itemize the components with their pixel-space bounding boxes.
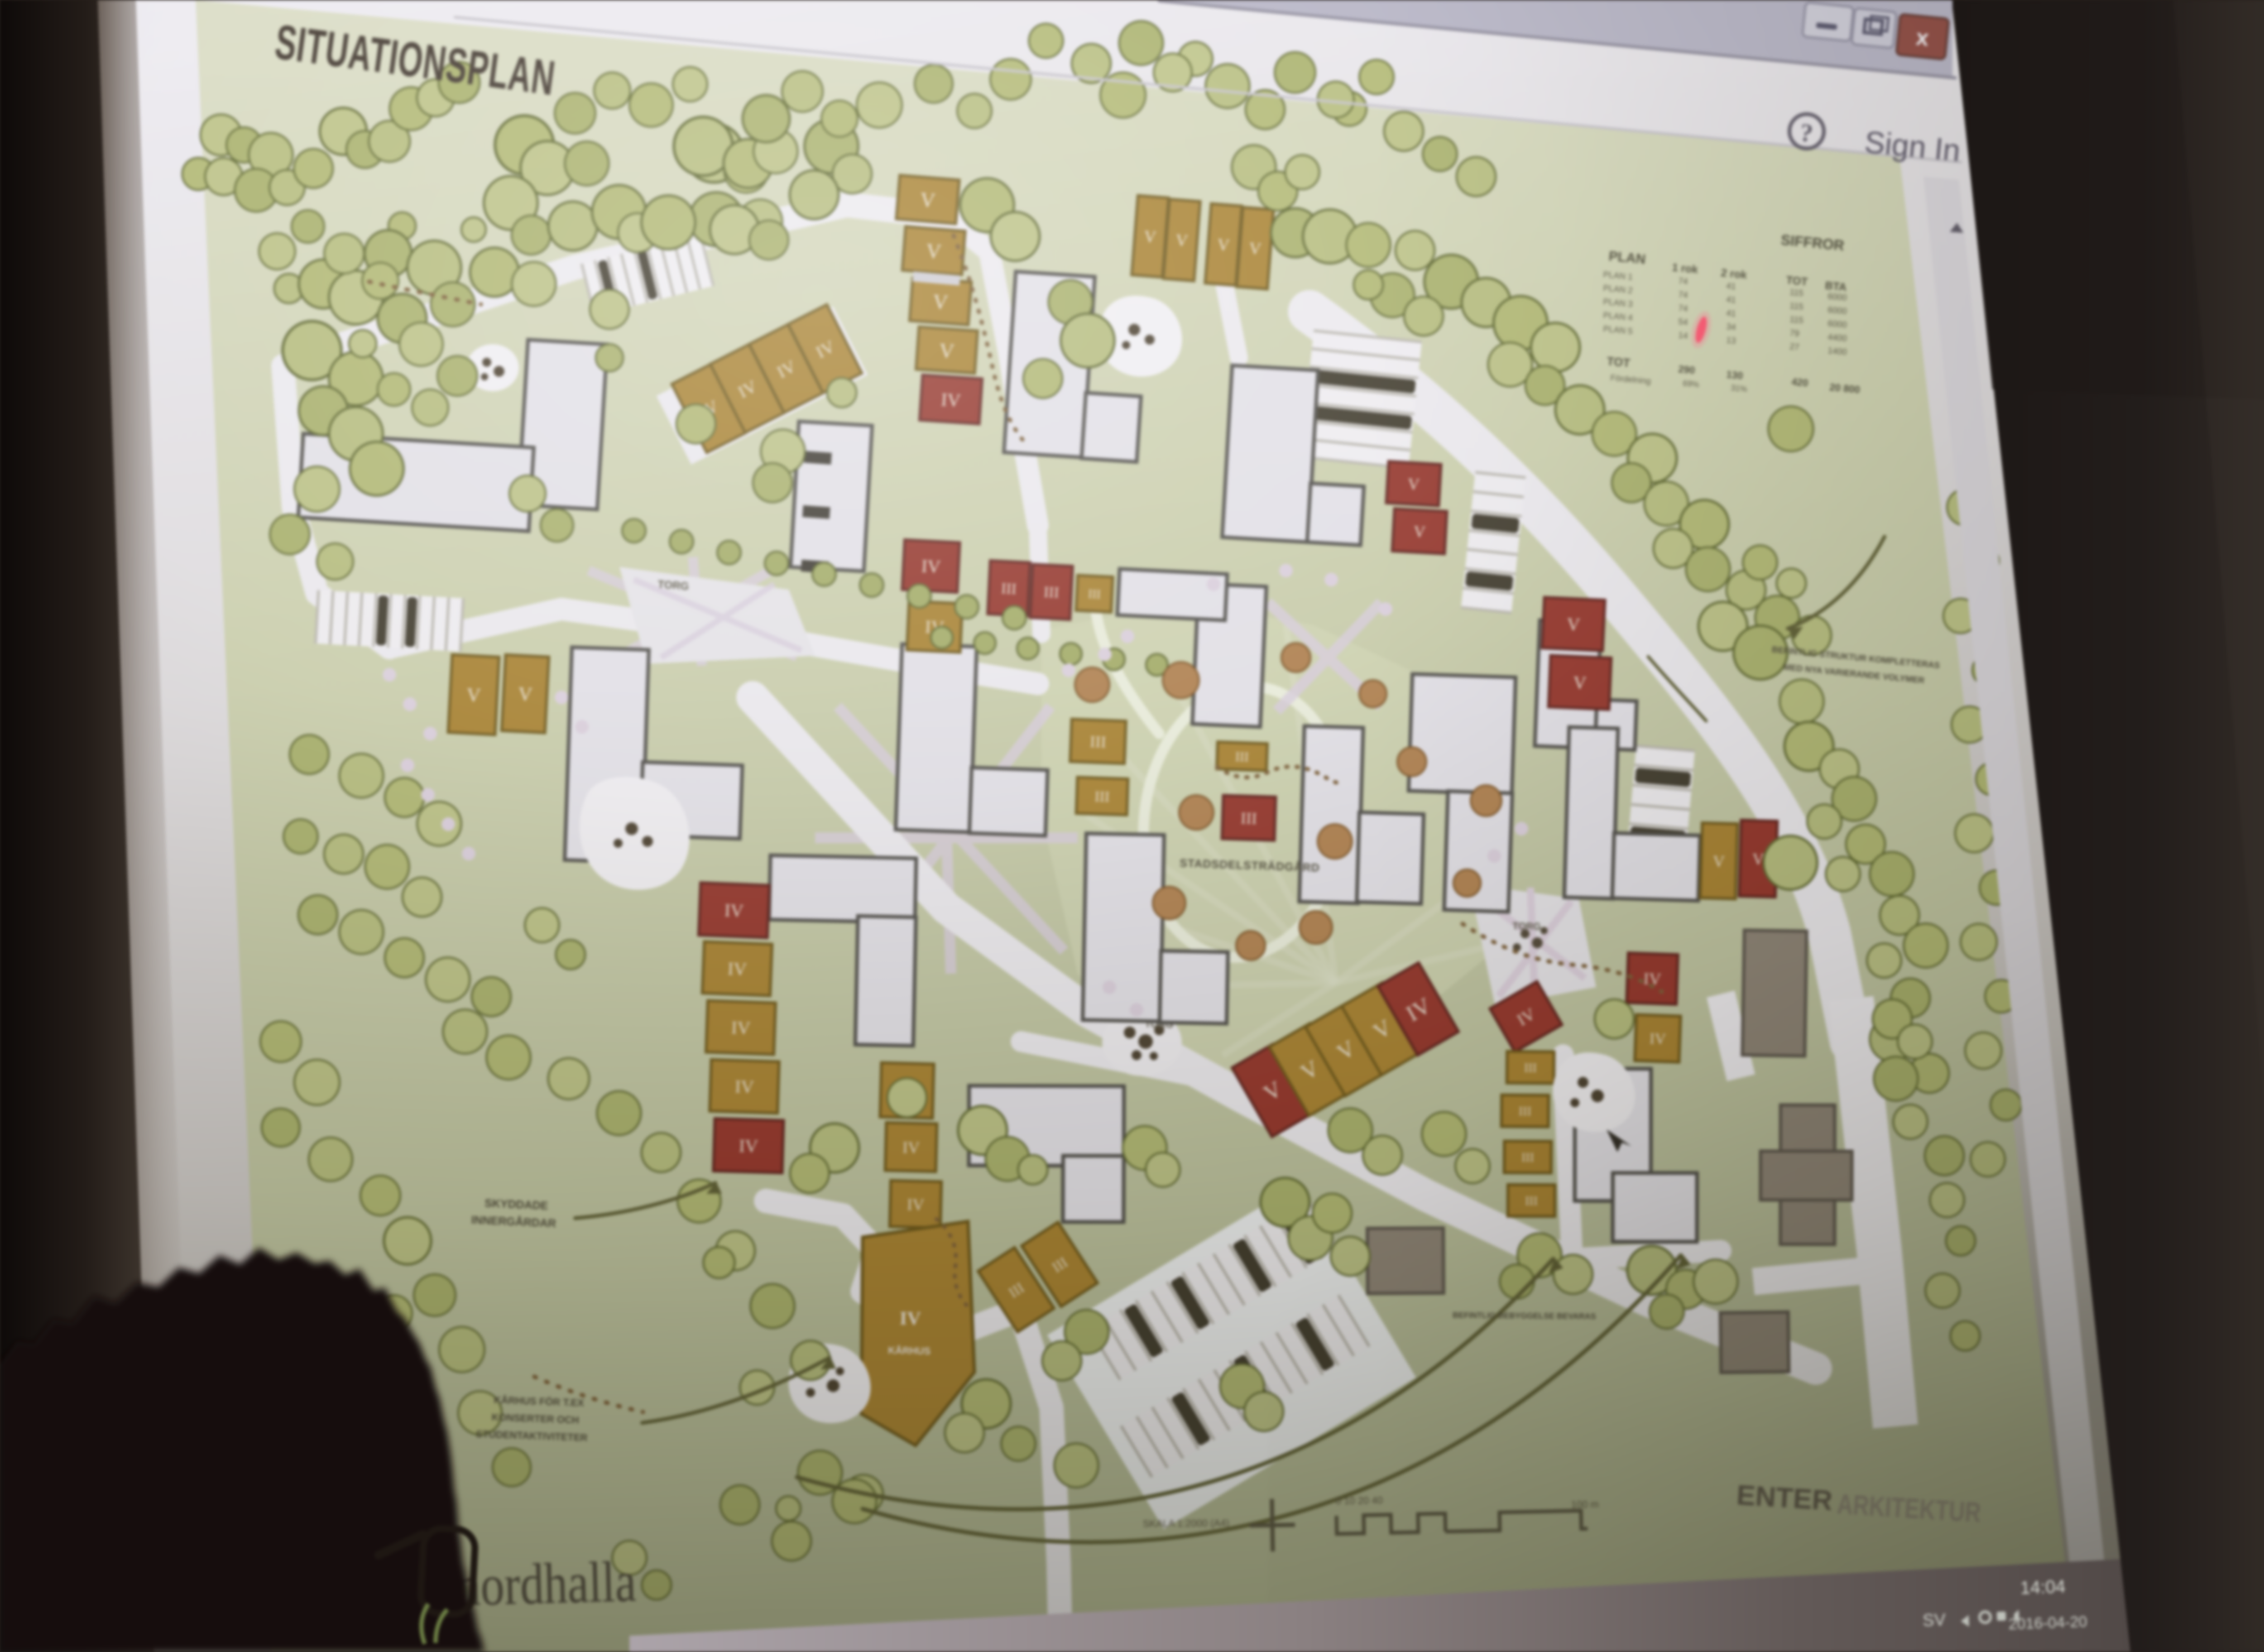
svg-text:SV: SV (1923, 1610, 1947, 1630)
svg-text:14:04: 14:04 (2020, 1577, 2066, 1598)
svg-text:2016-04-20: 2016-04-20 (2008, 1613, 2087, 1633)
